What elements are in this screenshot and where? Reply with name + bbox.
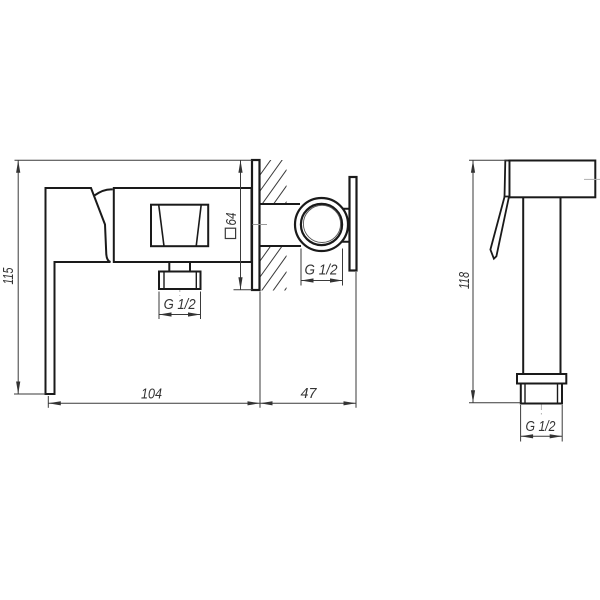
svg-text:64: 64 <box>224 213 240 226</box>
svg-text:115: 115 <box>1 267 17 285</box>
svg-text:104: 104 <box>141 387 162 403</box>
svg-text:118: 118 <box>457 272 473 289</box>
svg-text:G 1/2: G 1/2 <box>526 419 556 435</box>
svg-text:47: 47 <box>301 386 318 402</box>
svg-text:G 1/2: G 1/2 <box>164 297 196 313</box>
svg-text:G 1/2: G 1/2 <box>305 263 338 279</box>
